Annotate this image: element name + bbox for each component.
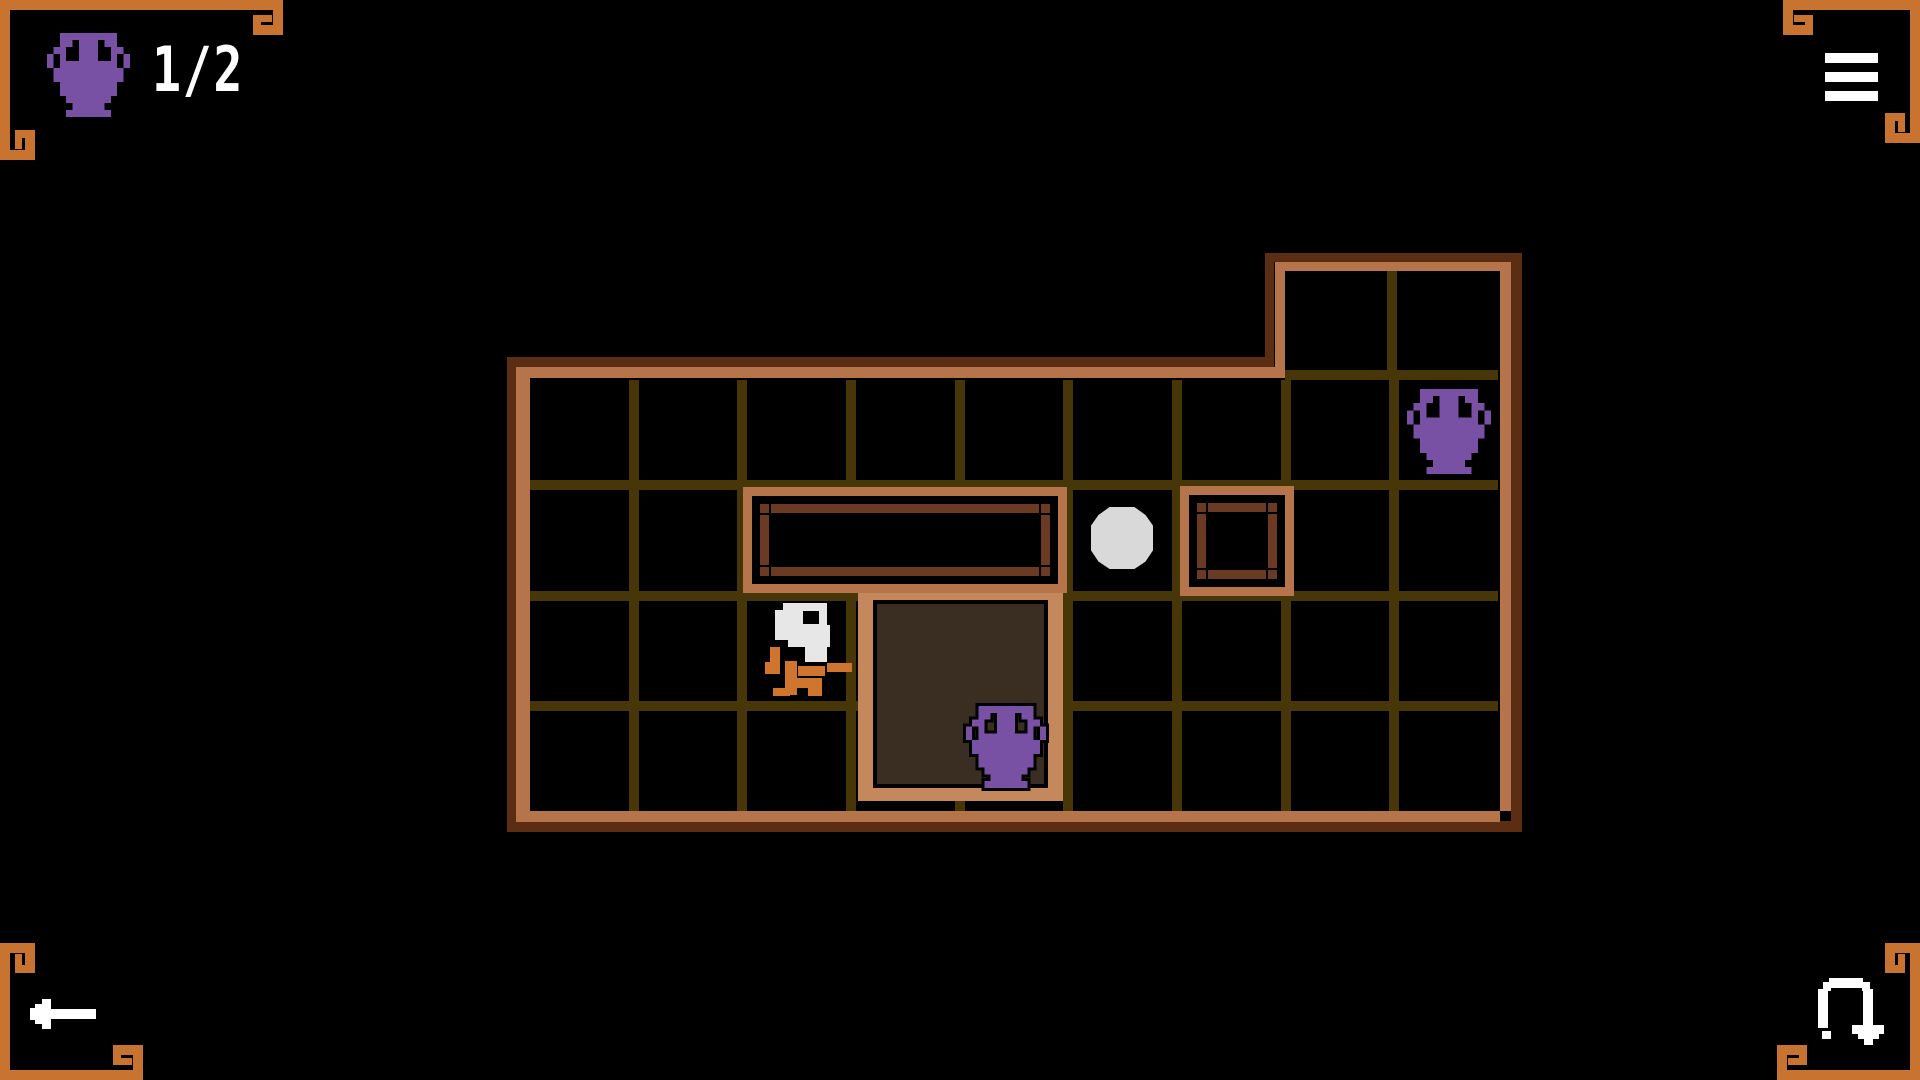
player-character[interactable] — [763, 601, 853, 696]
game-stage: 1/2 — [0, 0, 1920, 1080]
wall-block-wide — [743, 487, 1067, 593]
game-board[interactable] — [0, 0, 1920, 1080]
marble-ball[interactable] — [1091, 507, 1153, 569]
amphora-goal[interactable] — [1407, 389, 1491, 474]
amphora-counter-icon — [47, 33, 130, 117]
wall-block-small — [1180, 486, 1294, 596]
amphora-in-pit[interactable] — [966, 706, 1046, 788]
